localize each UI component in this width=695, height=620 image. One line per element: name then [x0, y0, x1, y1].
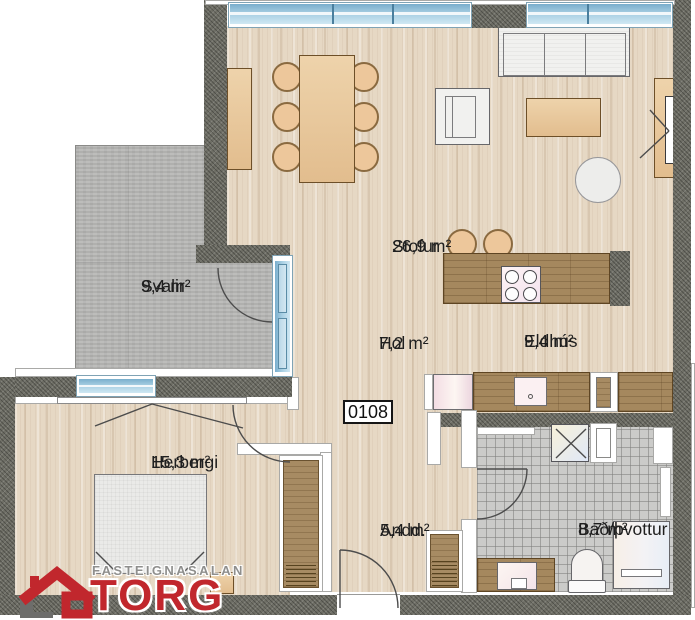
sofa-divider	[585, 34, 586, 75]
radiator	[660, 467, 671, 517]
exterior-wall-left-lower	[0, 377, 15, 595]
wardrobe-symbol-bar	[57, 397, 247, 404]
room-area: 15,3 m²	[151, 452, 210, 474]
bath-wall-upper	[461, 410, 477, 468]
washing-machine	[551, 424, 589, 462]
window-mid-rail	[230, 12, 470, 15]
room-area: 7,2 m²	[379, 333, 429, 355]
toilet-tank	[568, 580, 606, 593]
balcony-floor	[75, 145, 207, 263]
armchair-seat-line	[452, 96, 453, 138]
room-area: 9,4 m²	[141, 276, 191, 298]
window-mid-rail	[528, 12, 671, 15]
dining-chair	[272, 142, 302, 172]
room-area: 5,4 m²	[380, 520, 430, 542]
closet-vents	[286, 562, 316, 586]
counter-end-cap	[424, 374, 433, 410]
entry-wardrobe-vents	[432, 558, 457, 586]
room-area: 8,7 m²	[578, 519, 628, 541]
sink-drain	[528, 394, 533, 399]
bathtub-rim	[621, 569, 662, 577]
fridge	[433, 374, 473, 410]
exterior-wall-left-upper	[204, 0, 227, 248]
exterior-wall-right	[673, 0, 691, 610]
window-mullion	[587, 4, 589, 24]
bath-wall-lower	[461, 519, 477, 593]
dining-chair	[272, 62, 302, 92]
island-end-wall	[610, 251, 630, 306]
bedroom-window-rail	[79, 385, 153, 387]
balcony-door-sash	[278, 318, 287, 369]
kitchen-counter	[618, 372, 673, 412]
window-mullion	[392, 4, 394, 24]
exterior-lining-right	[691, 363, 695, 608]
entrance-door-gap	[337, 594, 400, 620]
sofa-seat	[503, 33, 626, 76]
shaft-wall	[427, 412, 441, 465]
unit-number-badge: 0108	[343, 400, 393, 424]
pantry-door	[596, 377, 611, 408]
room-area: 26,9 m²	[392, 236, 451, 258]
round-rug	[575, 157, 621, 203]
bath-niche-inner	[596, 428, 611, 458]
cooktop-burner	[505, 270, 519, 284]
logo-brand: TORG	[90, 576, 224, 616]
armchair-seat	[445, 96, 476, 138]
kitchen-sink	[514, 377, 547, 406]
sideboard	[227, 68, 252, 170]
balcony-door-sash	[278, 264, 287, 313]
balcony-seam	[128, 146, 129, 374]
cooktop-burner	[523, 287, 537, 301]
bedroom-wall-cap	[237, 443, 332, 455]
vanity-faucet	[511, 578, 527, 589]
window-mullion	[332, 4, 334, 24]
cooktop-burner	[523, 270, 537, 284]
bath-corner-lining	[653, 427, 673, 464]
coffee-table	[526, 98, 601, 137]
torg-logo: FASTEIGNASALAN TORG	[16, 556, 246, 620]
wall-lining	[477, 427, 535, 435]
sofa-divider	[544, 34, 545, 75]
room-area: 9,4 m²	[524, 331, 574, 353]
cooktop-burner	[505, 287, 519, 301]
dining-chair	[272, 102, 302, 132]
dining-table	[299, 55, 355, 183]
floor-plan: Svalir 9,4 m² Stofur 26,9 m² Hol 7,2 m² …	[0, 0, 695, 620]
